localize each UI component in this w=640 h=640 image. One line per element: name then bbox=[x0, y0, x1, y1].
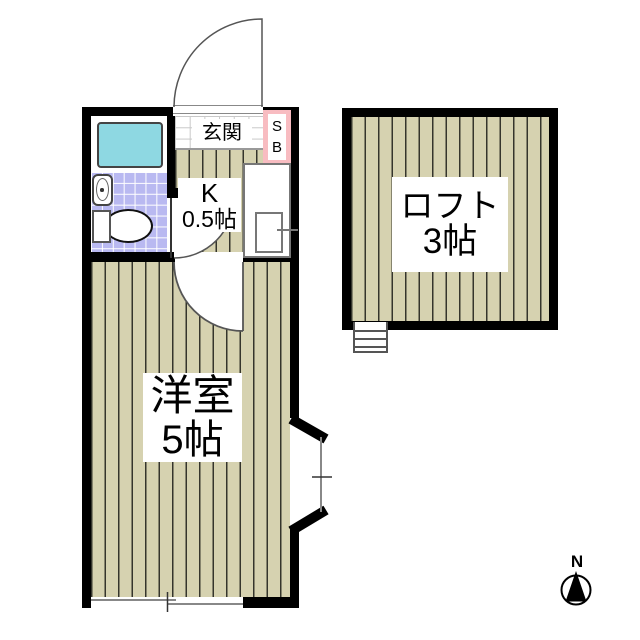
toilet-icon bbox=[92, 209, 154, 244]
bay-wall-top bbox=[291, 419, 326, 439]
shoe-box-inner: S B bbox=[268, 114, 286, 160]
ladder-rung bbox=[355, 338, 386, 340]
wall-left bbox=[82, 107, 91, 608]
western-room-size: 5帖 bbox=[161, 419, 223, 462]
wall-bathroom-right bbox=[167, 116, 175, 198]
floor-plan-canvas: S B 玄関 K 0.5帖 洋室 5帖 ロフト 3帖 N bbox=[0, 0, 640, 640]
entrance-door-icon bbox=[174, 19, 262, 107]
shoe-box: S B bbox=[263, 110, 291, 164]
wall-bottom-right bbox=[243, 597, 299, 608]
bathroom-door-leaf bbox=[170, 198, 172, 258]
western-room-name: 洋室 bbox=[150, 373, 234, 418]
kitchen-label: K 0.5帖 bbox=[178, 178, 241, 232]
entrance-threshold bbox=[173, 105, 263, 114]
loft-name: ロフト bbox=[401, 188, 500, 224]
toilet-tank bbox=[92, 210, 111, 243]
ladder-rung bbox=[355, 346, 386, 348]
loft-ladder-icon bbox=[353, 322, 388, 353]
genkan-label: 玄関 bbox=[192, 119, 252, 148]
shoe-box-letter-b: B bbox=[272, 137, 282, 158]
kitchen-sink-icon bbox=[255, 212, 283, 253]
wall-top-left bbox=[82, 107, 173, 116]
loft-size: 3帖 bbox=[423, 223, 477, 261]
genkan-label-text: 玄関 bbox=[202, 123, 242, 145]
compass-north-text: N bbox=[571, 552, 583, 572]
compass-north-label: N bbox=[565, 552, 589, 572]
faucet-icon bbox=[277, 229, 298, 231]
compass-north-icon bbox=[566, 571, 587, 602]
kitchen-size: 0.5帖 bbox=[182, 207, 237, 232]
western-room-label: 洋室 5帖 bbox=[143, 373, 242, 462]
compass-circle bbox=[562, 576, 591, 605]
bay-wall-bottom bbox=[291, 510, 326, 531]
wall-right-upper bbox=[290, 107, 299, 418]
ladder-rung bbox=[355, 330, 386, 332]
washbasin-icon bbox=[92, 174, 113, 206]
shoe-box-letter-s: S bbox=[272, 116, 282, 137]
toilet-bowl bbox=[104, 209, 153, 243]
loft-label: ロフト 3帖 bbox=[392, 177, 508, 272]
bathtub-icon bbox=[97, 122, 163, 168]
wall-mid-left bbox=[91, 252, 175, 262]
kitchen-name: K bbox=[201, 179, 218, 207]
washbasin-drain bbox=[100, 188, 104, 192]
